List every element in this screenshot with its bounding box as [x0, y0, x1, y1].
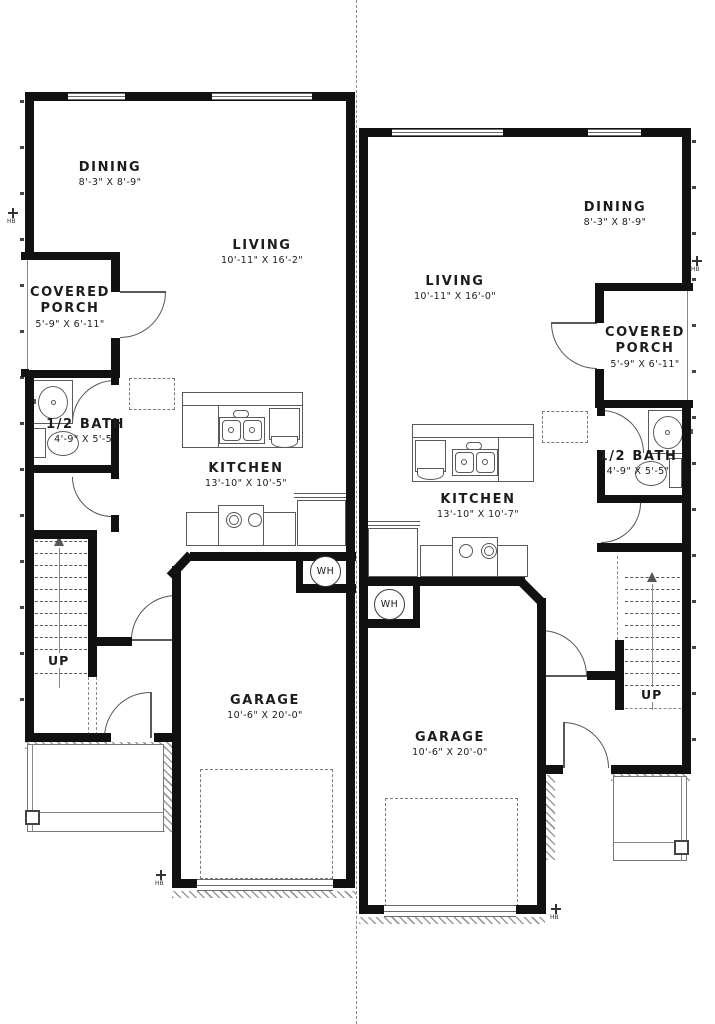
porch-post	[685, 283, 693, 291]
porch-door-arc	[551, 323, 597, 369]
closet-door-arc	[601, 503, 641, 543]
stair-wall-dashed	[617, 556, 618, 640]
wall-wh-closet-bottom	[364, 619, 420, 628]
entry-door-arc	[563, 722, 609, 768]
floor-plan: UP WH	[0, 0, 715, 1024]
refrigerator	[297, 500, 346, 546]
wall-porch-right-upper	[111, 252, 120, 292]
hose-bib-symbol: HB	[156, 870, 166, 880]
hose-bib-label: HB	[7, 218, 16, 225]
stair-tread	[625, 685, 685, 686]
entry-door-leaf	[150, 692, 152, 738]
hose-bib-symbol: HB	[692, 256, 702, 266]
room-name: 1/2 BATH	[38, 417, 133, 433]
sink-drain	[249, 427, 255, 433]
burner	[229, 515, 239, 525]
wall-bottom-right	[611, 765, 690, 774]
porch-door-arc	[120, 292, 166, 338]
water-heater: WH	[374, 589, 405, 620]
room-name: GARAGE	[205, 693, 325, 709]
pantry-dashed-box	[129, 378, 175, 410]
stair-tread	[625, 613, 685, 614]
hose-bib-cross	[551, 908, 561, 910]
burner	[484, 546, 494, 556]
sink-drain	[51, 400, 56, 405]
wall-ticks-right	[692, 140, 696, 760]
wall-bath-right-stub	[111, 377, 119, 385]
room-name: KITCHEN	[418, 492, 538, 508]
room-label-garage-right: GARAGE 10'-6" X 20'-0"	[390, 730, 510, 759]
room-dims: 5'-9" X 6'-11"	[28, 319, 112, 331]
wall-bottom-left	[545, 765, 563, 774]
faucet	[466, 442, 482, 450]
wall-garage-bottom-r	[332, 879, 355, 888]
porch-open-edge	[687, 291, 688, 401]
stair-bottom-dashed	[620, 708, 686, 709]
wall-left-upper	[25, 92, 34, 260]
refrigerator-coil	[294, 493, 349, 494]
dishwasher-front	[417, 468, 444, 480]
porch-door-leaf	[551, 322, 597, 324]
parking-pad	[385, 798, 518, 907]
entry-door-arc	[104, 692, 150, 738]
room-label-dining-left: DINING 8'-3" X 8'-9"	[40, 160, 180, 189]
wall-stair-top	[597, 543, 690, 552]
wall-garage-bottom-r	[515, 905, 545, 914]
up-label: UP	[638, 687, 665, 702]
room-label-garage-left: GARAGE 10'-6" X 20'-0"	[205, 693, 325, 722]
room-label-living-right: LIVING 10'-11" X 16'-0"	[385, 274, 525, 303]
hose-bib-cross	[8, 212, 18, 214]
wall-party-right	[359, 128, 368, 914]
hose-bib-cross	[156, 874, 166, 876]
wall-hall-stub2	[111, 515, 119, 532]
wall-garage-left	[172, 566, 181, 888]
wall-ticks-left	[20, 100, 24, 730]
stair-tread	[625, 637, 685, 638]
up-label: UP	[45, 653, 72, 668]
room-dims: 13'-10" X 10'-7"	[418, 509, 538, 521]
room-name: DINING	[545, 200, 685, 216]
room-dims: 10'-11" X 16'-2"	[192, 255, 332, 267]
wall-hall-stub	[111, 465, 119, 479]
refrigerator-coil	[366, 525, 420, 526]
room-dims: 8'-3" X 8'-9"	[40, 177, 180, 189]
hose-bib-symbol: HB	[551, 904, 561, 914]
room-label-living-left: LIVING 10'-11" X 16'-2"	[192, 238, 332, 267]
cabinet-divider	[498, 438, 499, 481]
closet-door-arc	[72, 477, 112, 517]
room-name: DINING	[40, 160, 180, 176]
room-dims: 10'-11" X 16'-0"	[385, 291, 525, 303]
room-label-bath-right: 1/2 BATH 4'-9" X 5'-5"	[588, 449, 688, 478]
pantry-dashed-box	[542, 411, 588, 443]
porch-post	[21, 369, 29, 377]
burner	[459, 544, 473, 558]
wall-stair-right	[88, 538, 97, 677]
hose-bib-label: HB	[155, 880, 164, 887]
hall-door-arc	[131, 595, 176, 640]
faucet	[233, 410, 249, 418]
water-heater: WH	[310, 556, 341, 587]
room-dims: 8'-3" X 8'-9"	[545, 217, 685, 229]
wall-bath-bottom	[25, 465, 119, 473]
sink-drain	[665, 430, 670, 435]
porch-rail-line	[27, 812, 164, 813]
stair-wall-dashed	[96, 677, 97, 735]
stair-tread	[625, 661, 685, 662]
room-name: 1/2 BATH	[588, 449, 688, 465]
porch-door-leaf	[120, 291, 166, 293]
wall-porch-top	[595, 283, 690, 291]
dishwasher-front	[271, 436, 298, 448]
up-arrow	[647, 572, 657, 582]
sill-hatch-vertical	[163, 744, 172, 832]
stair-tread	[625, 589, 685, 590]
room-dims: 5'-9" X 6'-11"	[603, 359, 687, 371]
hall-door-leaf	[131, 639, 176, 641]
wall-porch-left-upper	[595, 283, 604, 323]
stair-tread	[625, 673, 685, 674]
island-counter-edge	[182, 405, 303, 406]
room-dims: 4'-9" X 5'-5"	[588, 466, 688, 478]
wall-garage-bottom-l	[172, 879, 198, 888]
room-name: LIVING	[192, 238, 332, 254]
island-counter-edge	[412, 437, 534, 438]
porch-post-square	[674, 840, 689, 855]
hose-bib-cross	[692, 260, 702, 262]
room-label-bath-left: 1/2 BATH 4'-9" X 5'-5"	[38, 417, 133, 446]
window	[392, 129, 503, 136]
wh-label: WH	[317, 566, 335, 577]
room-name: COVERED PORCH	[28, 285, 112, 318]
property-centerline	[356, 0, 357, 1024]
wall-hall-garage	[587, 671, 617, 680]
front-porch-deck	[27, 744, 164, 832]
refrigerator-coil	[366, 521, 420, 522]
sill-hatch-vertical	[546, 775, 555, 860]
refrigerator-coil	[294, 497, 349, 498]
sink-drain	[461, 459, 467, 465]
stair-wall-dashed	[88, 677, 89, 735]
hall-door-leaf	[541, 675, 587, 677]
wall-garage-bottom-l	[359, 905, 385, 914]
wall-porch-bottom	[595, 400, 690, 408]
wall-left-lower	[25, 370, 34, 742]
wall-bath-bottom	[597, 495, 690, 503]
wall-party-left	[346, 92, 355, 888]
refrigerator	[368, 528, 418, 577]
sill-hatch	[359, 917, 545, 924]
room-label-kitchen-left: KITCHEN 13'-10" X 10'-5"	[186, 461, 306, 490]
sill-hatch	[172, 891, 356, 898]
wall-bath-left-stub	[597, 408, 605, 416]
room-dims: 4'-9" X 5'-5"	[38, 434, 133, 446]
wall-hall-garage	[97, 637, 132, 646]
room-label-porch-right: COVERED PORCH 5'-9" X 6'-11"	[603, 325, 687, 370]
room-label-dining-right: DINING 8'-3" X 8'-9"	[545, 200, 685, 229]
garage-door	[384, 905, 516, 917]
bath-door-arc	[601, 410, 644, 453]
hose-bib-label: HB	[550, 914, 559, 921]
hose-bib-label: HB	[691, 266, 700, 273]
room-name: COVERED PORCH	[603, 325, 687, 358]
wall-garage-right	[537, 598, 546, 914]
room-label-kitchen-right: KITCHEN 13'-10" X 10'-7"	[418, 492, 538, 521]
porch-post	[685, 400, 693, 408]
wall-bottom-left	[25, 733, 111, 742]
parking-pad	[200, 769, 333, 879]
stair-tread	[625, 625, 685, 626]
stair-tread	[625, 649, 685, 650]
room-dims: 10'-6" X 20'-0"	[390, 747, 510, 759]
window	[212, 93, 312, 100]
sink-drain	[228, 427, 234, 433]
room-dims: 10'-6" X 20'-0"	[205, 710, 325, 722]
room-dims: 13'-10" X 10'-5"	[186, 478, 306, 490]
hose-bib-symbol: HB	[8, 208, 18, 218]
wall-porch-top	[25, 252, 120, 260]
room-name: KITCHEN	[186, 461, 306, 477]
wall-kitchen-bottom	[359, 577, 525, 586]
entry-door-leaf	[563, 722, 565, 768]
window	[68, 93, 125, 100]
window	[588, 129, 641, 136]
room-name: GARAGE	[390, 730, 510, 746]
sink-drain	[482, 459, 488, 465]
porch-post-square	[25, 810, 40, 825]
hall-door-arc	[541, 630, 587, 676]
porch-post	[21, 252, 29, 260]
stair-tread	[625, 601, 685, 602]
garage-door	[197, 879, 333, 891]
room-name: LIVING	[385, 274, 525, 290]
wh-label: WH	[381, 599, 399, 610]
room-label-porch-left: COVERED PORCH 5'-9" X 6'-11"	[28, 285, 112, 330]
wall-porch-bottom	[25, 370, 120, 378]
burner	[248, 513, 262, 527]
